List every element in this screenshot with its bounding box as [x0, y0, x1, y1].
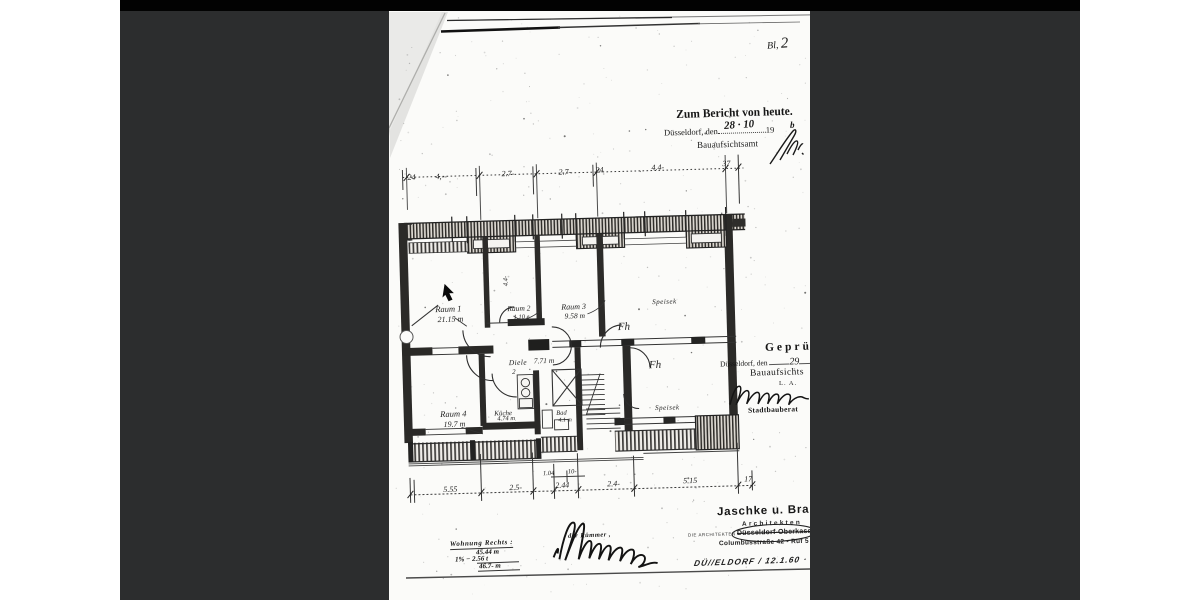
- svg-text:Fh: Fh: [648, 359, 662, 371]
- svg-text:4.4-: 4.4-: [502, 276, 509, 286]
- svg-text:2: 2: [512, 368, 516, 376]
- svg-text:10-: 10-: [568, 468, 577, 475]
- svg-text:4.74 m: 4.74 m: [497, 415, 515, 422]
- svg-text:2.44: 2.44: [555, 480, 569, 489]
- svg-text:Speisek: Speisek: [655, 403, 680, 412]
- svg-text:Raum 2: Raum 2: [506, 303, 531, 313]
- svg-text:4.1 m: 4.1 m: [558, 416, 572, 423]
- svg-text:24: 24: [407, 173, 415, 182]
- svg-text:24: 24: [595, 165, 603, 174]
- svg-text:2.5-: 2.5-: [509, 483, 522, 492]
- svg-text:Diele: Diele: [508, 358, 528, 368]
- svg-text:Raum 4: Raum 4: [439, 408, 467, 419]
- svg-text:4,--: 4,--: [435, 172, 447, 181]
- svg-text:37: 37: [721, 159, 731, 168]
- svg-text:1.04: 1.04: [543, 470, 555, 477]
- svg-text:4.4-: 4.4-: [651, 163, 664, 172]
- svg-text:Bad: Bad: [556, 410, 567, 417]
- svg-text:21.15 m: 21.15 m: [437, 314, 463, 324]
- svg-text:2.7-: 2.7-: [501, 169, 514, 178]
- svg-text:Raum 1: Raum 1: [434, 303, 461, 314]
- svg-text:Fh: Fh: [617, 321, 631, 333]
- svg-text:2.4-: 2.4-: [607, 479, 620, 488]
- svg-text:2.7-: 2.7-: [558, 167, 571, 176]
- svg-text:Speisek: Speisek: [652, 297, 677, 306]
- svg-text:7.71 m: 7.71 m: [534, 356, 555, 366]
- svg-text:9.58 m: 9.58 m: [564, 311, 585, 321]
- svg-text:5.55: 5.55: [443, 485, 457, 494]
- svg-text:5.15: 5.15: [683, 476, 697, 485]
- svg-text:17: 17: [744, 474, 753, 483]
